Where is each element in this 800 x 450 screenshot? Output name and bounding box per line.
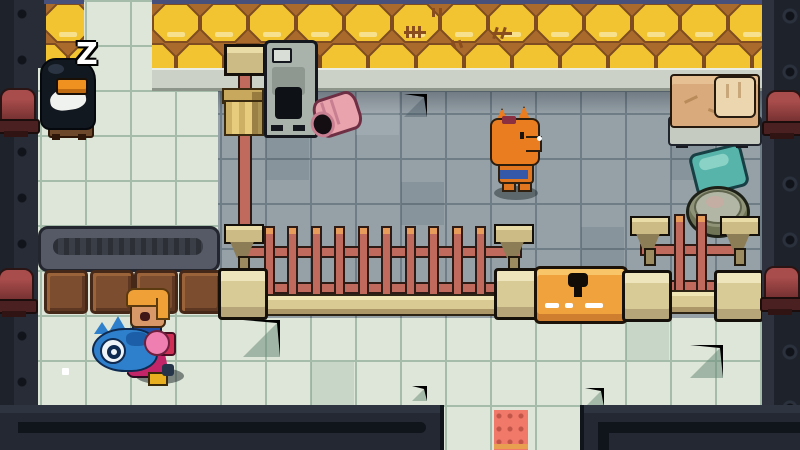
player-hair-side xyxy=(156,298,170,320)
left-wall xyxy=(0,0,38,450)
pillow-crease xyxy=(738,82,741,98)
fence-bar xyxy=(696,214,707,298)
fox-npc[interactable] xyxy=(486,110,544,202)
fence-bar xyxy=(381,226,392,300)
door-edge xyxy=(580,405,584,450)
chest[interactable] xyxy=(534,266,628,324)
furnace-opening xyxy=(275,87,302,119)
player-mouth xyxy=(140,312,150,321)
floor-tile xyxy=(401,182,444,225)
floor-tile xyxy=(356,92,399,135)
wall-top-strip xyxy=(44,0,84,4)
door-edge xyxy=(440,405,444,450)
fence-post-cap xyxy=(630,216,666,258)
wall-groove xyxy=(18,422,426,433)
sparkle xyxy=(62,368,69,375)
left-wall-panel xyxy=(14,0,38,450)
right-wall xyxy=(762,0,800,450)
floor-tile xyxy=(581,227,624,270)
fence-post-cap xyxy=(224,224,260,266)
floor-tile xyxy=(311,362,354,405)
door-mat-hem xyxy=(494,444,528,449)
fox-nose xyxy=(537,136,542,141)
scratch-marks xyxy=(494,27,518,41)
wall-lamp xyxy=(762,90,800,140)
fence-bar xyxy=(358,226,369,300)
fence-post-cap xyxy=(494,224,530,266)
basin-contents xyxy=(706,196,724,208)
fox-shorts xyxy=(500,170,528,179)
wall-lamp xyxy=(0,268,34,318)
fence-bar xyxy=(475,226,486,300)
pillow xyxy=(714,76,756,118)
chest-highlight xyxy=(585,303,603,308)
wall-groove-corner xyxy=(598,422,609,450)
chest-highlight xyxy=(545,303,559,308)
penguin-npc[interactable]: Z xyxy=(38,42,104,138)
crate[interactable] xyxy=(44,270,88,314)
bed[interactable] xyxy=(664,68,762,150)
wall-step xyxy=(0,405,443,413)
furnace-foot xyxy=(271,125,283,131)
pillow-crease xyxy=(726,84,729,98)
floor-tile xyxy=(626,317,669,360)
fence-bar xyxy=(405,226,416,300)
lamp-foot xyxy=(4,131,28,137)
fence-bar xyxy=(428,226,439,300)
chair-shadow xyxy=(252,92,262,134)
scratch-marks xyxy=(452,40,468,52)
fence-bar xyxy=(311,226,322,300)
chest-keyhole-stem xyxy=(574,283,582,297)
player-character[interactable] xyxy=(92,288,188,392)
bottom-wall-right xyxy=(582,405,800,450)
lamp-foot xyxy=(770,133,794,139)
floor-shadow xyxy=(404,94,427,117)
fence-post-base xyxy=(218,268,268,320)
gold-chair[interactable] xyxy=(220,88,264,138)
lamp-foot xyxy=(768,309,792,315)
sleep-bubble: Z xyxy=(76,40,98,70)
stool-leg xyxy=(78,134,86,140)
fox-eye xyxy=(520,132,524,139)
chest-highlight xyxy=(565,303,573,308)
fence-short xyxy=(620,212,760,318)
bottom-wall-left xyxy=(0,405,443,450)
fence-post-cap xyxy=(720,216,756,258)
wall-lamp xyxy=(760,266,800,316)
door-mat[interactable] xyxy=(494,410,528,450)
counter-rail xyxy=(53,238,203,255)
scratch-marks xyxy=(406,26,432,42)
furnace-foot xyxy=(293,125,305,131)
fish-tail-tip xyxy=(162,364,174,376)
floor-shadow xyxy=(690,345,723,378)
scratch-marks xyxy=(432,8,450,20)
wall-step xyxy=(582,405,800,413)
game-viewport[interactable]: Z xyxy=(0,0,800,450)
floor-shadow xyxy=(243,320,280,357)
fish-pupil xyxy=(107,345,121,359)
wall-lamp xyxy=(0,88,36,138)
teal-mat-shine xyxy=(698,153,730,172)
fence-post-base xyxy=(714,270,764,322)
penguin-cap-shine xyxy=(48,64,64,74)
floor-shadow xyxy=(412,386,427,401)
penguin-beak xyxy=(56,78,88,95)
fence-long xyxy=(216,222,540,318)
counter[interactable] xyxy=(38,226,220,272)
fence-board xyxy=(256,294,506,316)
floor-tile xyxy=(266,137,309,180)
player-pouch xyxy=(144,330,170,356)
tall-post-cap xyxy=(224,44,266,76)
right-wall-panel xyxy=(762,0,774,450)
stool-leg xyxy=(52,134,60,140)
furnace-vent xyxy=(272,48,292,63)
fence-post-base xyxy=(622,270,672,322)
fox-hair-tuft xyxy=(502,116,516,124)
fence-bar xyxy=(334,226,345,300)
fence-bar xyxy=(452,226,463,300)
wall-top-strip xyxy=(152,0,762,4)
fence-bar xyxy=(674,214,685,298)
lamp-foot xyxy=(2,311,26,317)
wall-groove xyxy=(598,422,800,433)
fence-bar xyxy=(287,226,298,300)
